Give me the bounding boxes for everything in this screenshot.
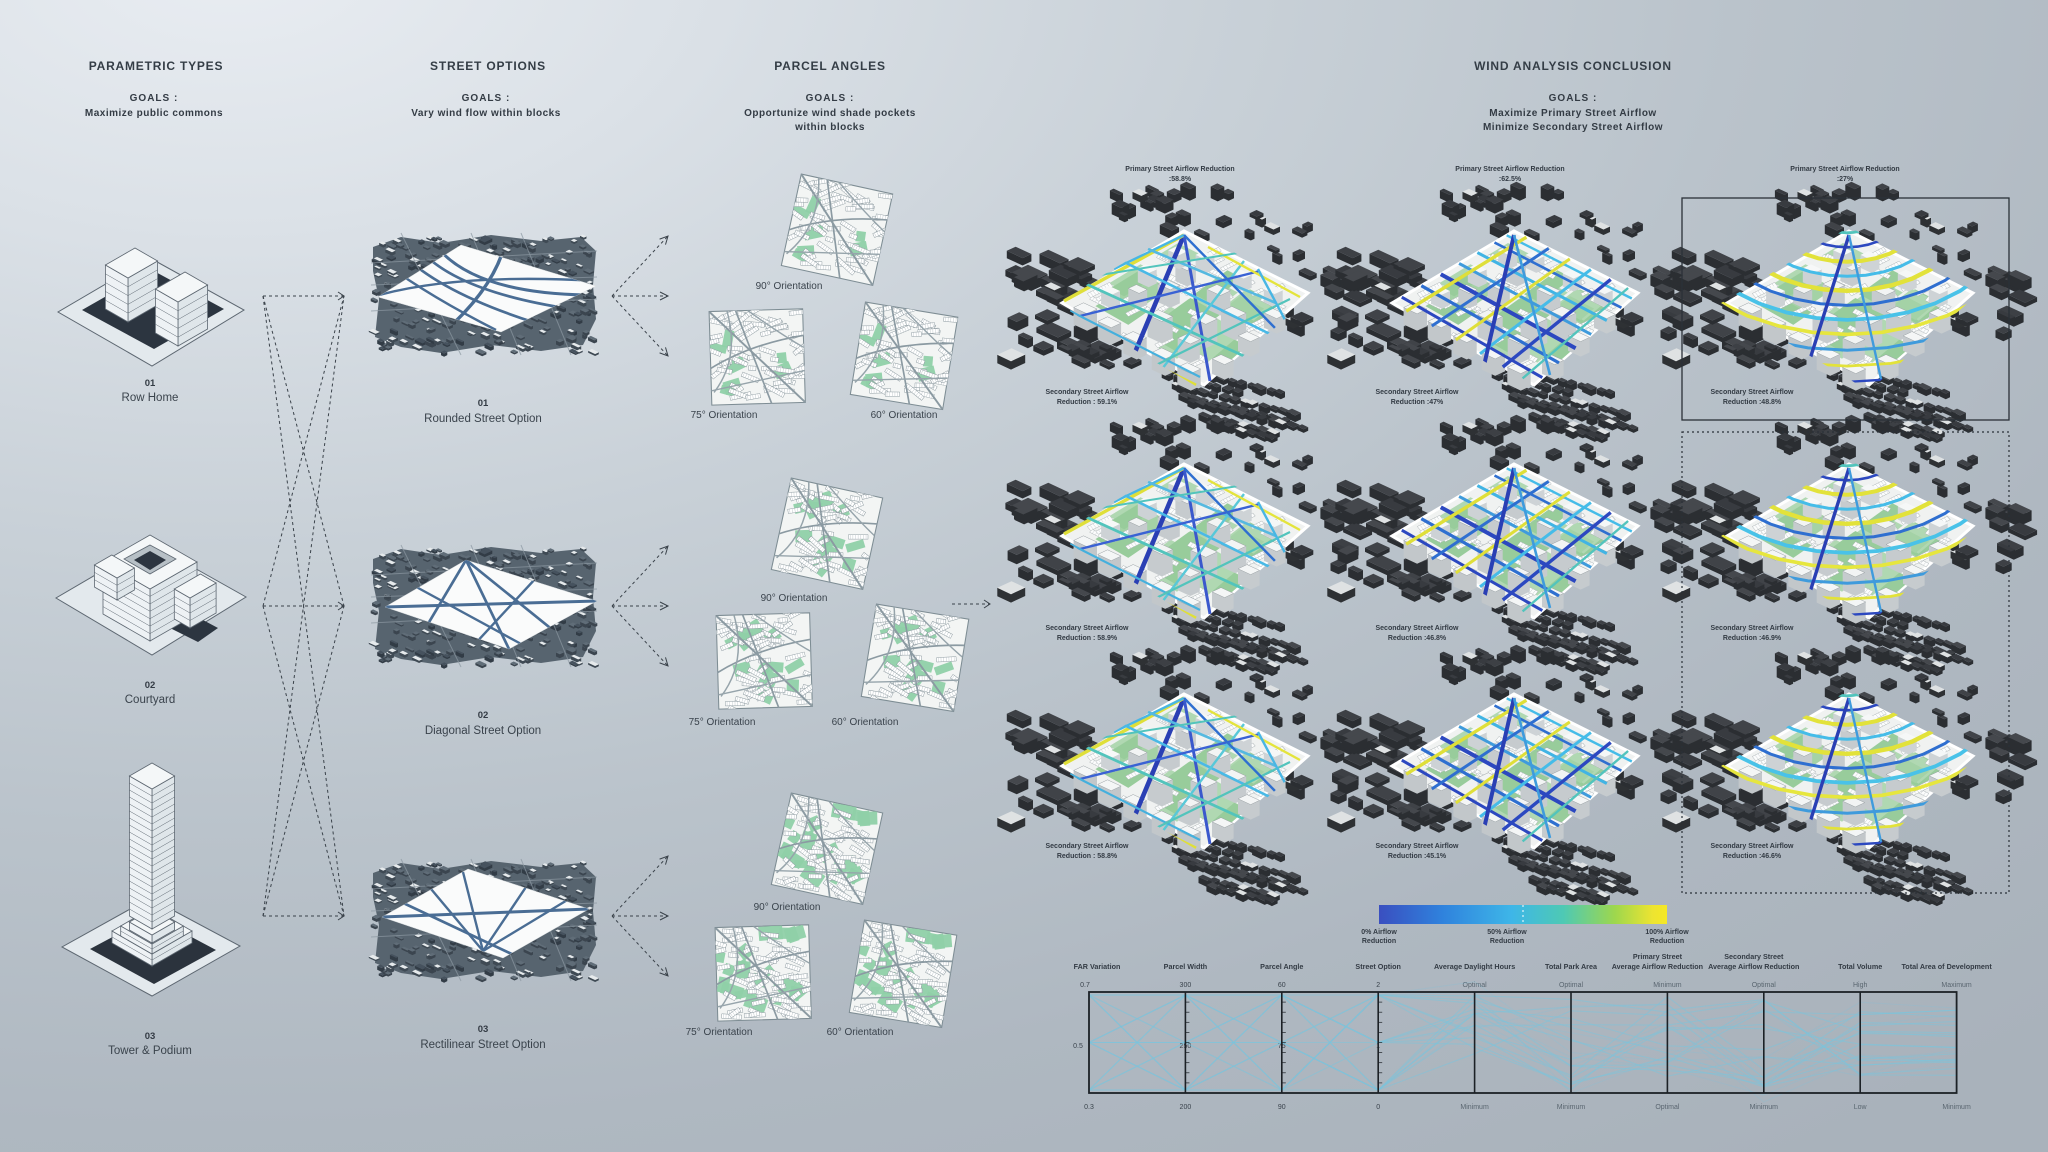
- svg-text:0% Airflow: 0% Airflow: [1361, 929, 1397, 936]
- svg-text:Maximize public commons: Maximize public commons: [85, 108, 223, 119]
- svg-text:Reduction: Reduction: [1490, 938, 1524, 945]
- svg-text:Vary wind flow within blocks: Vary wind flow within blocks: [411, 108, 561, 119]
- svg-text:Secondary Street Airflow: Secondary Street Airflow: [1046, 389, 1130, 396]
- svg-text:60° Orientation: 60° Orientation: [871, 410, 938, 421]
- svg-text:Maximum: Maximum: [1941, 982, 1972, 989]
- svg-text:Reduction: Reduction: [1362, 938, 1396, 945]
- svg-text:Optimal: Optimal: [1559, 982, 1584, 989]
- svg-text:02: 02: [145, 680, 156, 691]
- svg-text:GOALS :: GOALS :: [130, 93, 179, 104]
- svg-text:Courtyard: Courtyard: [125, 694, 176, 706]
- svg-text:Total Volume: Total Volume: [1838, 962, 1882, 971]
- svg-text:High: High: [1853, 982, 1868, 989]
- svg-text:GOALS :: GOALS :: [806, 93, 855, 104]
- svg-text:Minimize Secondary Street Airf: Minimize Secondary Street Airflow: [1483, 122, 1663, 133]
- svg-text:Reduction :46.8%: Reduction :46.8%: [1388, 635, 1447, 642]
- svg-text:75° Orientation: 75° Orientation: [686, 1027, 753, 1038]
- svg-text:300: 300: [1180, 982, 1192, 989]
- svg-text:Average Daylight Hours: Average Daylight Hours: [1434, 962, 1515, 971]
- svg-text:200: 200: [1180, 1104, 1192, 1111]
- svg-text:50% Airflow: 50% Airflow: [1487, 929, 1527, 936]
- svg-text:Optimal: Optimal: [1752, 982, 1777, 989]
- svg-text:0.7: 0.7: [1080, 982, 1090, 989]
- svg-text:60: 60: [1278, 982, 1286, 989]
- svg-text:03: 03: [145, 1031, 156, 1042]
- svg-text:Reduction : 58.8%: Reduction : 58.8%: [1057, 853, 1118, 860]
- svg-text:Primary Street: Primary Street: [1633, 952, 1683, 961]
- svg-text:Secondary Street Airflow: Secondary Street Airflow: [1711, 843, 1795, 850]
- svg-text:Primary Street Airflow Reducti: Primary Street Airflow Reduction: [1790, 166, 1899, 173]
- svg-text:Primary Street Airflow Reducti: Primary Street Airflow Reduction: [1455, 166, 1564, 173]
- svg-text:Minimum: Minimum: [1750, 1104, 1779, 1111]
- svg-text:01: 01: [145, 378, 156, 389]
- svg-text:Secondary Street Airflow: Secondary Street Airflow: [1376, 625, 1460, 632]
- svg-text:STREET OPTIONS: STREET OPTIONS: [430, 59, 546, 73]
- svg-text::62.5%: :62.5%: [1499, 176, 1522, 183]
- svg-text:Secondary Street Airflow: Secondary Street Airflow: [1376, 843, 1460, 850]
- svg-text:0: 0: [1376, 1104, 1380, 1111]
- svg-text:Reduction :47%: Reduction :47%: [1391, 399, 1444, 406]
- svg-text:PARAMETRIC TYPES: PARAMETRIC TYPES: [89, 59, 224, 73]
- svg-text:0.5: 0.5: [1073, 1043, 1083, 1050]
- svg-text:FAR Variation: FAR Variation: [1074, 962, 1121, 971]
- svg-text:Minimum: Minimum: [1460, 1104, 1489, 1111]
- svg-text:Street Option: Street Option: [1355, 962, 1401, 971]
- svg-text:Low: Low: [1854, 1104, 1868, 1111]
- svg-text:within blocks: within blocks: [794, 122, 865, 133]
- svg-text:100% Airflow: 100% Airflow: [1645, 929, 1689, 936]
- svg-text:Secondary Street Airflow: Secondary Street Airflow: [1711, 389, 1795, 396]
- svg-text:Reduction :46.6%: Reduction :46.6%: [1723, 853, 1782, 860]
- svg-text:Secondary Street Airflow: Secondary Street Airflow: [1046, 843, 1130, 850]
- svg-text:Secondary Street Airflow: Secondary Street Airflow: [1711, 625, 1795, 632]
- svg-text:90: 90: [1278, 1104, 1286, 1111]
- svg-text:PARCEL ANGLES: PARCEL ANGLES: [774, 59, 886, 73]
- svg-text:60° Orientation: 60° Orientation: [827, 1027, 894, 1038]
- svg-text:Maximize Primary Street Airflo: Maximize Primary Street Airflow: [1489, 108, 1656, 119]
- svg-text:90° Orientation: 90° Orientation: [754, 902, 821, 913]
- svg-text:2: 2: [1376, 982, 1380, 989]
- svg-text:Rectilinear Street Option: Rectilinear Street Option: [420, 1039, 545, 1051]
- svg-text:Optimal: Optimal: [1655, 1104, 1680, 1111]
- svg-text:Reduction :48.8%: Reduction :48.8%: [1723, 399, 1782, 406]
- svg-text:Secondary Street: Secondary Street: [1724, 952, 1784, 961]
- svg-text:75° Orientation: 75° Orientation: [691, 410, 758, 421]
- svg-text::58.8%: :58.8%: [1169, 176, 1192, 183]
- svg-text:02: 02: [478, 710, 489, 721]
- svg-text:Minimum: Minimum: [1557, 1104, 1586, 1111]
- svg-text:Reduction: Reduction: [1650, 938, 1684, 945]
- svg-text:01: 01: [478, 398, 489, 409]
- svg-text:Reduction :46.9%: Reduction :46.9%: [1723, 635, 1782, 642]
- svg-text:60° Orientation: 60° Orientation: [832, 717, 899, 728]
- svg-text:75° Orientation: 75° Orientation: [689, 717, 756, 728]
- svg-text:Parcel Angle: Parcel Angle: [1260, 962, 1303, 971]
- svg-text:Reduction :45.1%: Reduction :45.1%: [1388, 853, 1447, 860]
- svg-text:Rounded Street Option: Rounded Street Option: [424, 413, 542, 425]
- svg-text:Minimum: Minimum: [1653, 982, 1682, 989]
- svg-text:Parcel Width: Parcel Width: [1164, 962, 1207, 971]
- svg-text:Minimum: Minimum: [1942, 1104, 1971, 1111]
- svg-text:GOALS :: GOALS :: [462, 93, 511, 104]
- svg-text:90° Orientation: 90° Orientation: [761, 593, 828, 604]
- svg-text:Diagonal Street Option: Diagonal Street Option: [425, 725, 541, 737]
- svg-text:90° Orientation: 90° Orientation: [756, 281, 823, 292]
- svg-text:Tower & Podium: Tower & Podium: [108, 1045, 192, 1057]
- svg-text:Reduction : 58.9%: Reduction : 58.9%: [1057, 635, 1118, 642]
- svg-text:Primary Street Airflow Reducti: Primary Street Airflow Reduction: [1125, 166, 1234, 173]
- svg-text:Secondary Street Airflow: Secondary Street Airflow: [1376, 389, 1460, 396]
- svg-text:0.3: 0.3: [1084, 1104, 1094, 1111]
- svg-text:Average Airflow Reduction: Average Airflow Reduction: [1708, 962, 1799, 971]
- svg-text:Total Area of Development: Total Area of Development: [1901, 962, 1992, 971]
- svg-text:03: 03: [478, 1024, 489, 1035]
- svg-text:Secondary Street Airflow: Secondary Street Airflow: [1046, 625, 1130, 632]
- svg-text:GOALS :: GOALS :: [1549, 93, 1598, 104]
- svg-text:Total Park Area: Total Park Area: [1545, 962, 1598, 971]
- svg-text:Opportunize wind shade pockets: Opportunize wind shade pockets: [744, 108, 916, 119]
- svg-text:Average Airflow Reduction: Average Airflow Reduction: [1612, 962, 1703, 971]
- svg-text:Row Home: Row Home: [122, 392, 179, 404]
- svg-text:Reduction : 59.1%: Reduction : 59.1%: [1057, 399, 1118, 406]
- svg-text:WIND ANALYSIS CONCLUSION: WIND ANALYSIS CONCLUSION: [1474, 59, 1672, 73]
